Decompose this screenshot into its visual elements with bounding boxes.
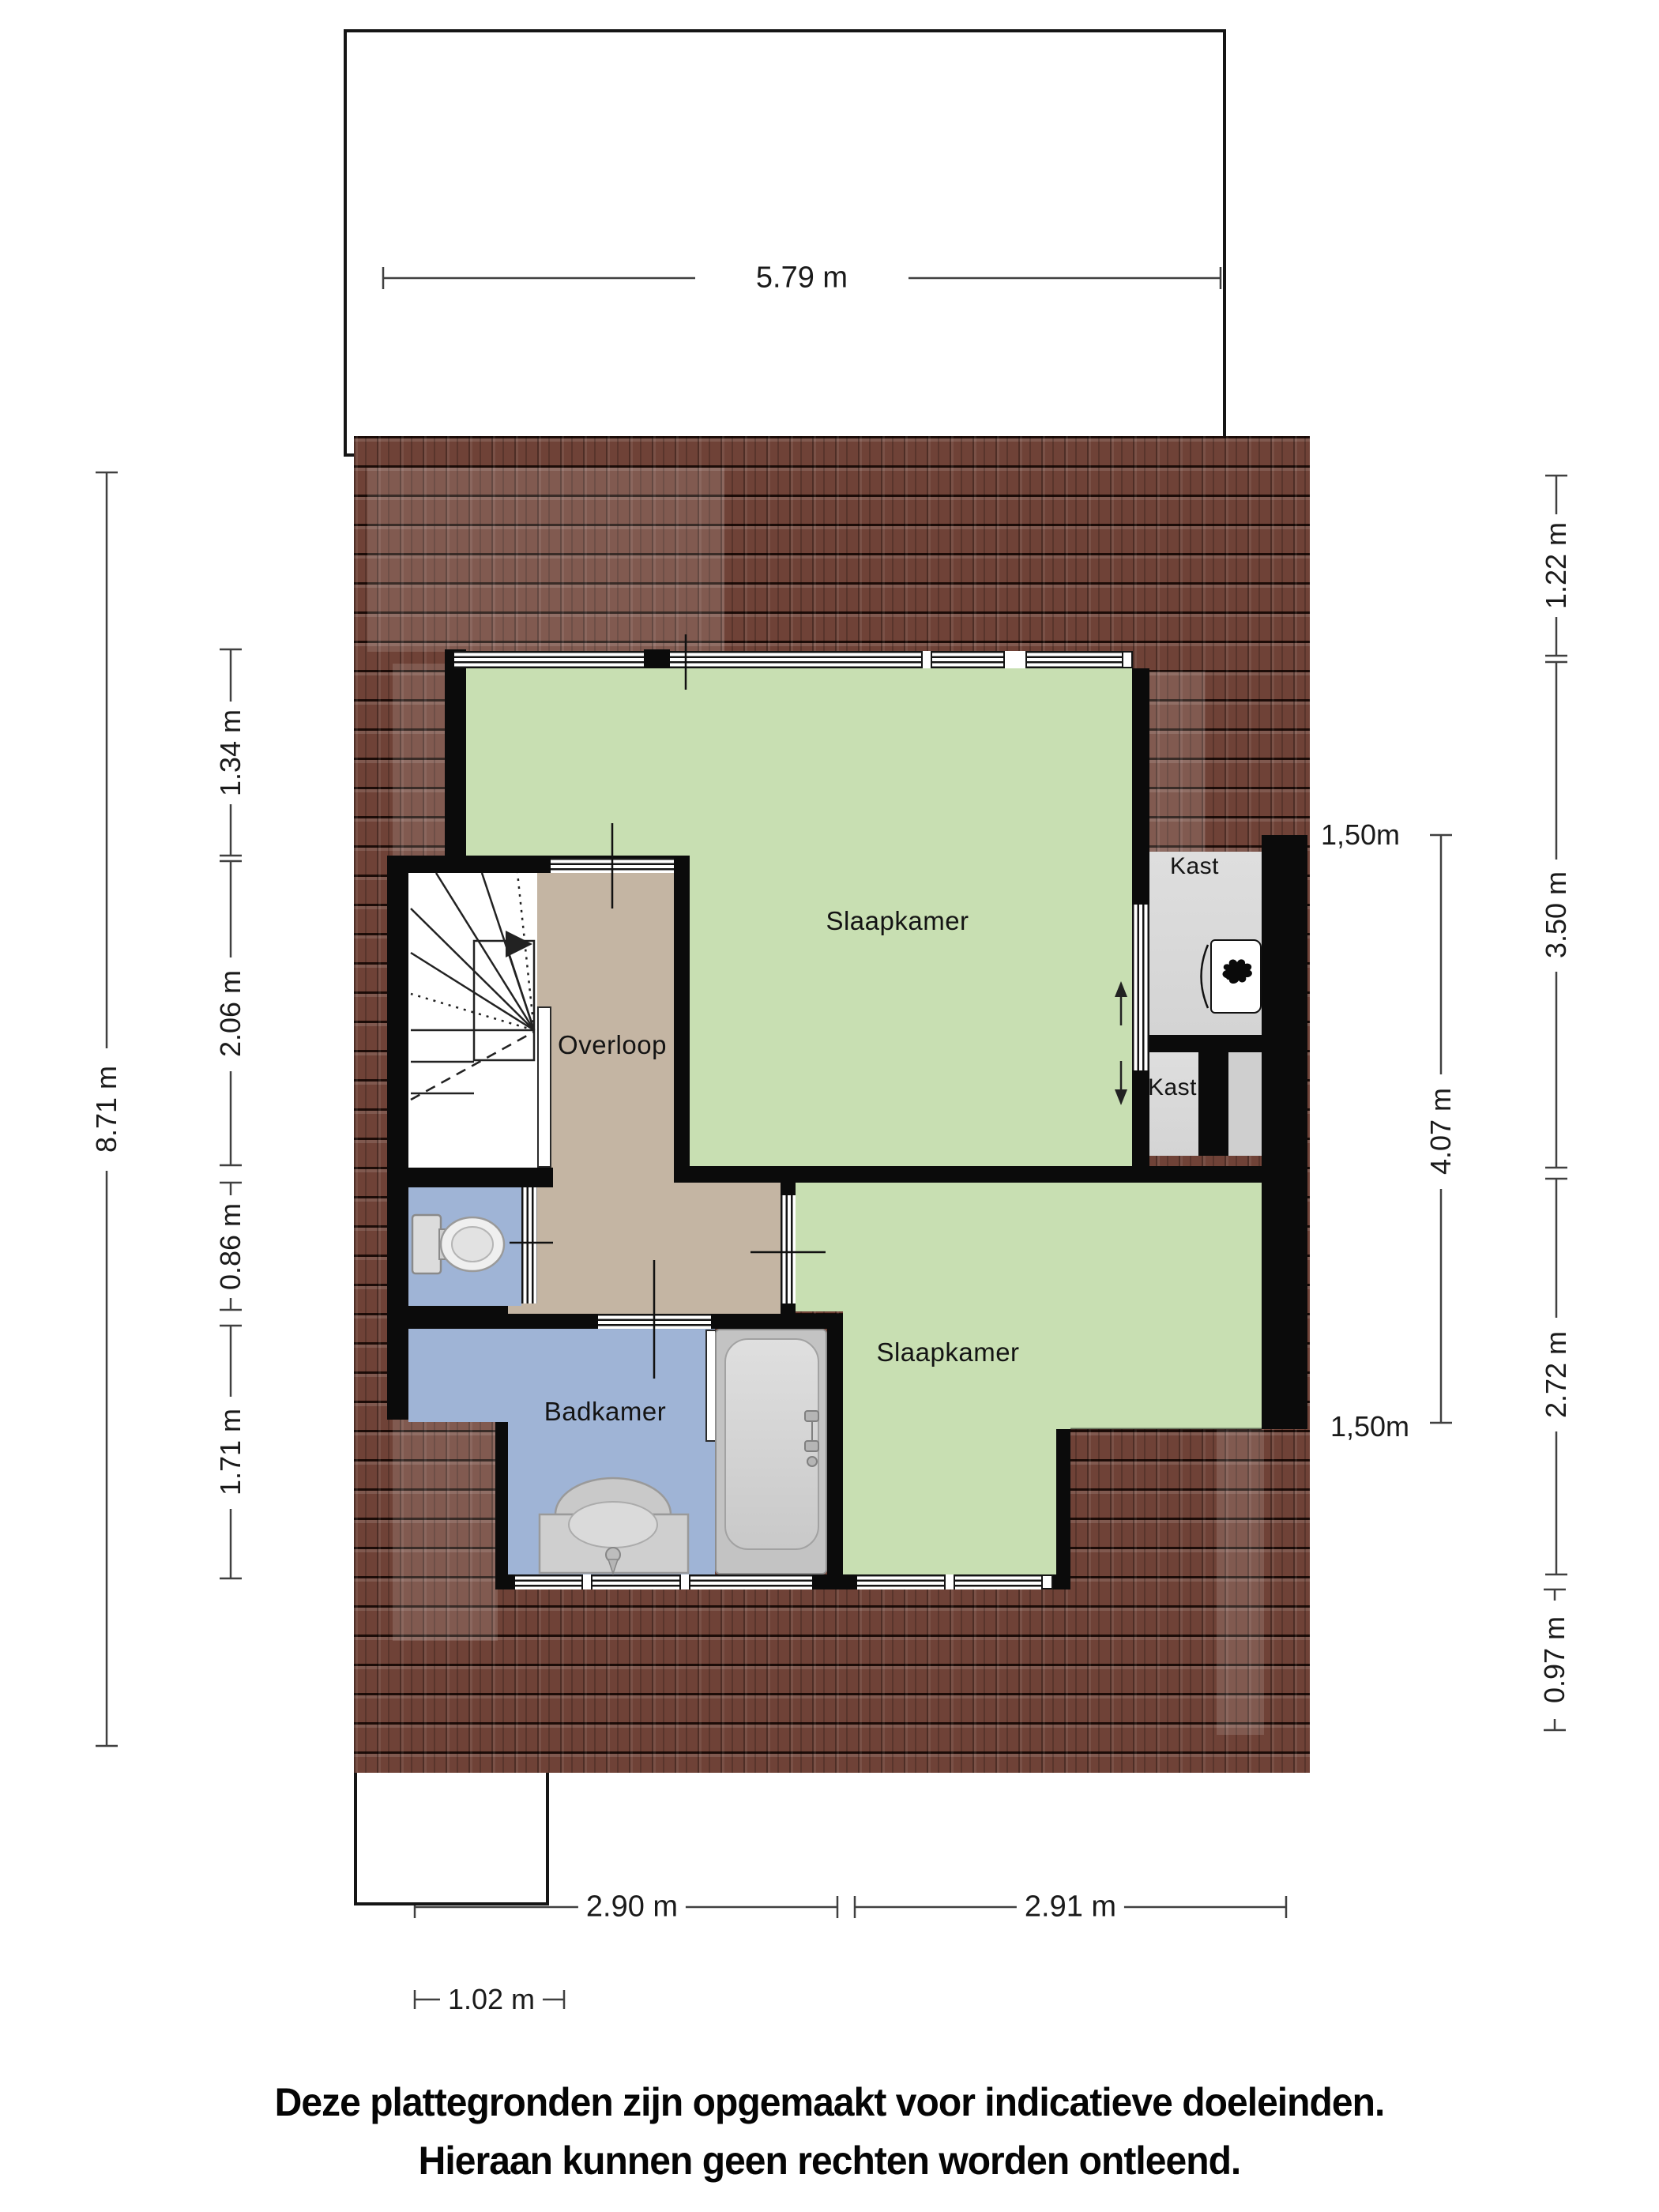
dim-right-inner: 4.07 m — [1424, 1080, 1458, 1183]
room-label-bedroom-bottom: Slaapkamer — [876, 1337, 1019, 1367]
dim-bottom-left: 2.90 m — [578, 1890, 686, 1924]
dim-right-1: 1.22 m — [1540, 514, 1573, 617]
room-label-closet-bottom: Kast — [1148, 1074, 1197, 1101]
stairs-direction-arrow-icon — [506, 931, 532, 957]
room-label-closet-top: Kast — [1170, 853, 1219, 880]
disclaimer-line-1: Deze plattegronden zijn opgemaakt voor i… — [33, 2073, 1626, 2131]
room-label-landing: Overloop — [558, 1030, 667, 1060]
room-label-bathroom: Badkamer — [544, 1397, 666, 1427]
room-label-bedroom-top: Slaapkamer — [826, 906, 969, 936]
dim-knee-bottom: 1,50m — [1322, 1410, 1417, 1443]
dim-left-4: 1.71 m — [214, 1401, 247, 1503]
plan-linework — [0, 0, 1659, 2212]
bathtub-tap-icon — [805, 1411, 818, 1466]
dim-top-width: 5.79 m — [748, 261, 856, 295]
dim-right-3: 2.72 m — [1540, 1323, 1573, 1426]
toilet-icon — [412, 1215, 504, 1273]
dim-left-2: 2.06 m — [214, 962, 247, 1065]
disclaimer-text: Deze plattegronden zijn opgemaakt voor i… — [33, 2073, 1626, 2190]
boiler-door-arc — [1202, 945, 1209, 1008]
dormer-outline-bottom — [354, 1773, 549, 1905]
dim-bottom-offset: 1.02 m — [440, 1983, 543, 2016]
stairs-icon — [411, 873, 534, 1100]
dim-right-4: 0.97 m — [1538, 1608, 1571, 1711]
dim-left-3: 0.86 m — [214, 1195, 247, 1298]
floorplan-page: Slaapkamer Slaapkamer Overloop Badkamer … — [0, 0, 1659, 2212]
slide-arrow-down-icon — [1115, 1061, 1127, 1105]
flame-icon — [1223, 959, 1252, 984]
slide-arrow-up-icon — [1115, 981, 1127, 1025]
disclaimer-line-2: Hieraan kunnen geen rechten worden ontle… — [33, 2131, 1626, 2190]
dim-right-2: 3.50 m — [1540, 863, 1573, 966]
dimension-lines — [96, 267, 1567, 2009]
dim-knee-top: 1,50m — [1313, 818, 1408, 852]
dim-bottom-right: 2.91 m — [1017, 1890, 1124, 1924]
sink-icon — [540, 1478, 688, 1574]
dim-left-1: 1.34 m — [214, 702, 247, 804]
opening-ticks — [510, 634, 826, 1379]
dim-left-outer: 8.71 m — [90, 1058, 123, 1161]
